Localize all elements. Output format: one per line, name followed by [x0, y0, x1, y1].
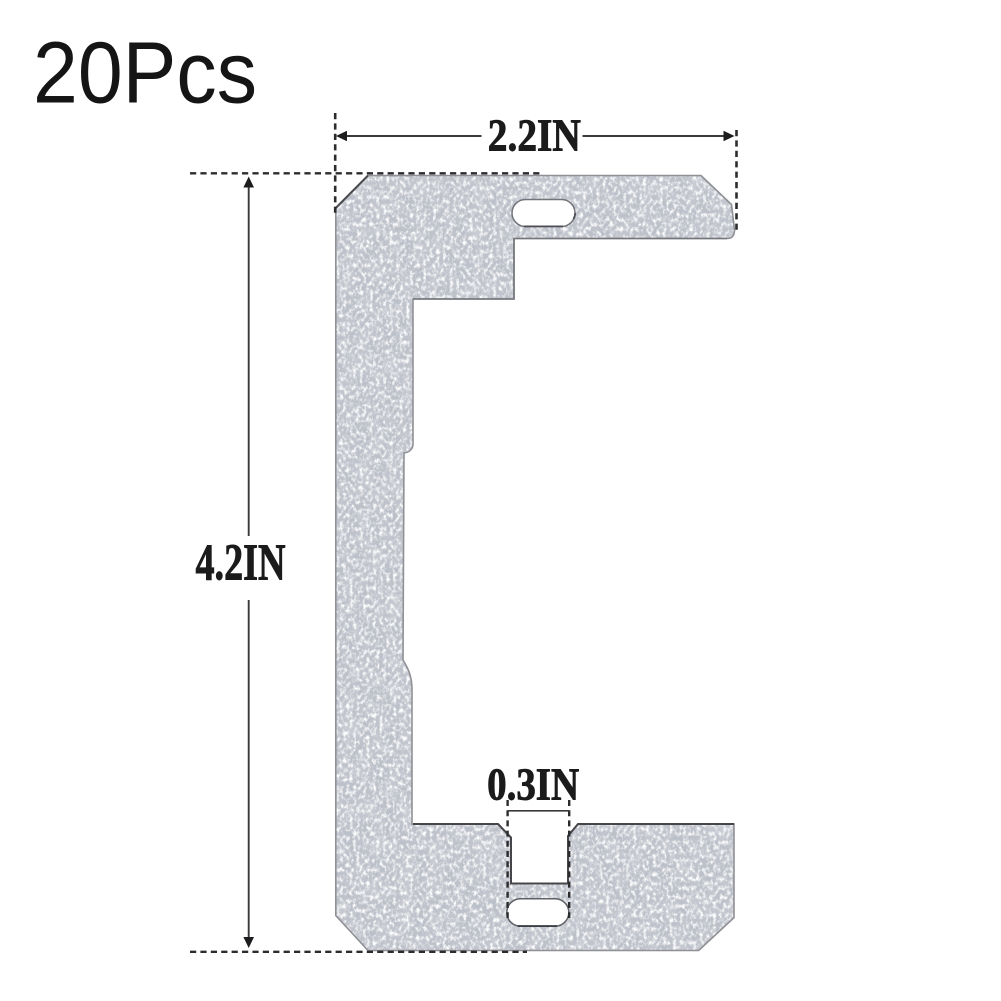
svg-text:20Pcs: 20Pcs [33, 25, 257, 122]
svg-text:0.3IN: 0.3IN [487, 759, 579, 810]
svg-text:2.2IN: 2.2IN [488, 110, 581, 161]
svg-text:4.2IN: 4.2IN [196, 535, 286, 592]
